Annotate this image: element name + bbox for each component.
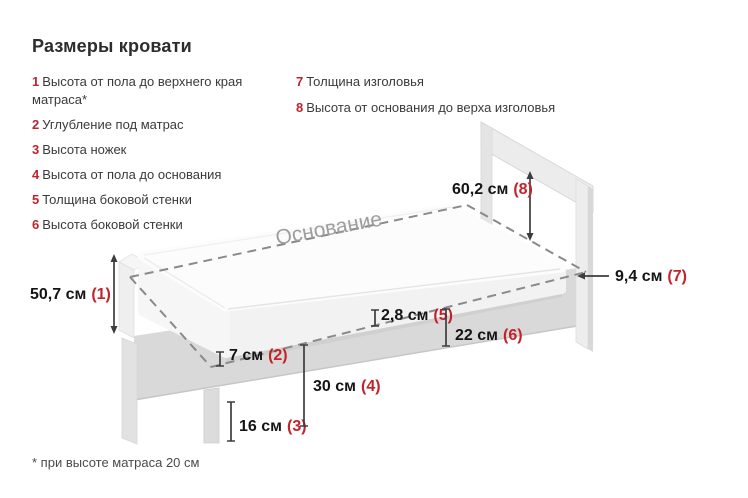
dim-6-value: 22 см <box>455 327 498 344</box>
headboard-near-post-side <box>588 186 593 352</box>
footboard-leg <box>122 338 137 444</box>
svg-text:22 см(6): 22 см(6) <box>455 327 523 344</box>
dim-3-callout: 16 см(3) <box>227 402 307 441</box>
bed-dimensions-diagram-page: { "title": "Размеры кровати", "legend": … <box>0 0 748 498</box>
dim-1-ref: (1) <box>91 286 111 303</box>
svg-text:7 см(2): 7 см(2) <box>229 347 288 364</box>
dim-1-callout: 50,7 см(1) <box>30 254 118 334</box>
svg-text:16 см(3): 16 см(3) <box>239 418 307 435</box>
dim-2-value: 7 см <box>229 347 263 364</box>
front-middle-leg <box>204 388 219 443</box>
dim-5-value: 2,8 см <box>381 307 428 324</box>
dim-7-ref: (7) <box>667 268 687 285</box>
dim-5-callout: 2,8 см(5) <box>371 307 453 326</box>
svg-text:9,4 см(7): 9,4 см(7) <box>615 268 687 285</box>
dim-4-value: 30 см <box>313 378 356 395</box>
dim-2-ref: (2) <box>268 347 288 364</box>
dim-7-callout: 9,4 см(7) <box>577 268 687 285</box>
dim-8-value: 60,2 см <box>452 181 508 198</box>
svg-text:30 см(4): 30 см(4) <box>313 378 381 395</box>
dim-4-ref: (4) <box>361 378 381 395</box>
headboard-near-post <box>576 179 588 349</box>
bed-illustration: Основание 50,7 см(1) 7 см(2) 16 см(3) 30… <box>0 0 748 498</box>
svg-text:60,2 см(8): 60,2 см(8) <box>452 181 533 198</box>
dim-8-ref: (8) <box>513 181 533 198</box>
footboard-panel <box>119 262 134 338</box>
dim-3-value: 16 см <box>239 418 282 435</box>
footnote: * при высоте матраса 20 см <box>32 455 199 470</box>
dim-6-ref: (6) <box>503 327 523 344</box>
dim-7-value: 9,4 см <box>615 268 662 285</box>
svg-text:50,7 см(1): 50,7 см(1) <box>30 286 111 303</box>
dim-1-value: 50,7 см <box>30 286 86 303</box>
